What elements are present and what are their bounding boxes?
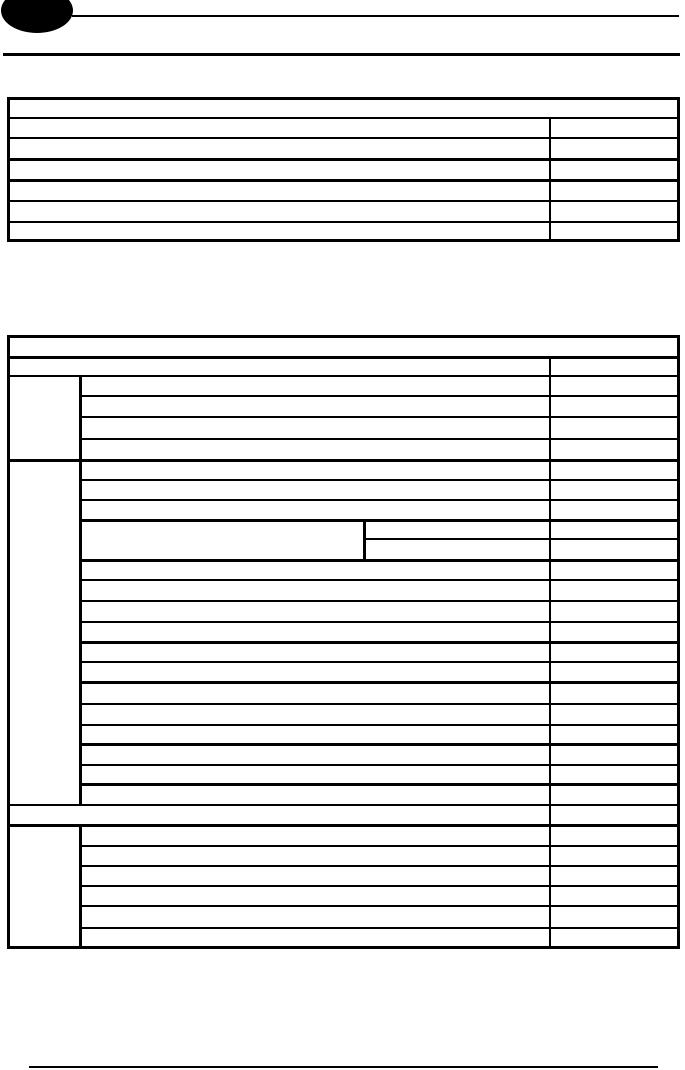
table2-category-divider-upper bbox=[79, 375, 82, 806]
header-rule-bottom bbox=[3, 53, 680, 56]
table2-splitblock-top bbox=[79, 519, 680, 522]
table2-rowline-14 bbox=[79, 724, 680, 726]
table2-rowline-13 bbox=[79, 703, 680, 705]
footer-rule bbox=[29, 1066, 658, 1068]
table2-border-bottom bbox=[7, 946, 680, 949]
table1-rowline-3 bbox=[7, 158, 680, 161]
table2-split-divider bbox=[363, 519, 366, 561]
table2-rowline-19 bbox=[79, 865, 680, 867]
table2-rowline-5 bbox=[79, 479, 680, 481]
table2-rowline-1 bbox=[7, 375, 680, 377]
table2-value-divider bbox=[549, 356, 551, 949]
table2-rowline-16 bbox=[79, 764, 680, 766]
logo-ellipse bbox=[1, 0, 73, 33]
table2-groupline-1 bbox=[7, 459, 680, 462]
table2-rowline-18 bbox=[79, 845, 680, 847]
table2-rowline-11 bbox=[79, 661, 680, 663]
table1-border-top bbox=[7, 97, 680, 100]
table2-header-bottom bbox=[7, 356, 680, 359]
table1-border-bottom bbox=[7, 239, 680, 242]
table1-rowline-2 bbox=[7, 137, 680, 139]
table2-rowline-21 bbox=[79, 905, 680, 907]
table2-rowline-6 bbox=[79, 499, 680, 501]
table2-splitblock-bottom bbox=[79, 559, 680, 562]
table1-rowline-5 bbox=[7, 200, 680, 202]
table1-rowline-6 bbox=[7, 221, 680, 223]
table2-category-divider-lower bbox=[79, 824, 82, 949]
table1-rowline-4 bbox=[7, 179, 680, 182]
table2-rowline-17 bbox=[79, 783, 680, 786]
header-rule-top bbox=[72, 15, 679, 17]
table2-fullband-bottom bbox=[7, 824, 680, 827]
table2-border-top bbox=[7, 335, 680, 338]
table2-rowline-22 bbox=[79, 927, 680, 929]
table1-rowline-1 bbox=[7, 117, 680, 119]
table2-rowline-8 bbox=[79, 600, 680, 602]
table2-fullband-top bbox=[7, 804, 680, 806]
table1-value-divider bbox=[549, 117, 551, 242]
table2-rowline-12 bbox=[79, 681, 680, 684]
table2-rowline-4 bbox=[79, 438, 680, 440]
table2-rowline-2 bbox=[79, 395, 680, 397]
page bbox=[0, 0, 685, 1070]
table2-rowline-7 bbox=[79, 579, 680, 581]
table2-rowline-9 bbox=[79, 621, 680, 623]
table2-rowline-3 bbox=[79, 416, 680, 418]
table2-splitblock-mid bbox=[363, 538, 680, 540]
table2-rowline-15 bbox=[79, 743, 680, 746]
table2-rowline-20 bbox=[79, 885, 680, 887]
table2-rowline-10 bbox=[79, 641, 680, 644]
table2-border-left bbox=[7, 335, 10, 949]
